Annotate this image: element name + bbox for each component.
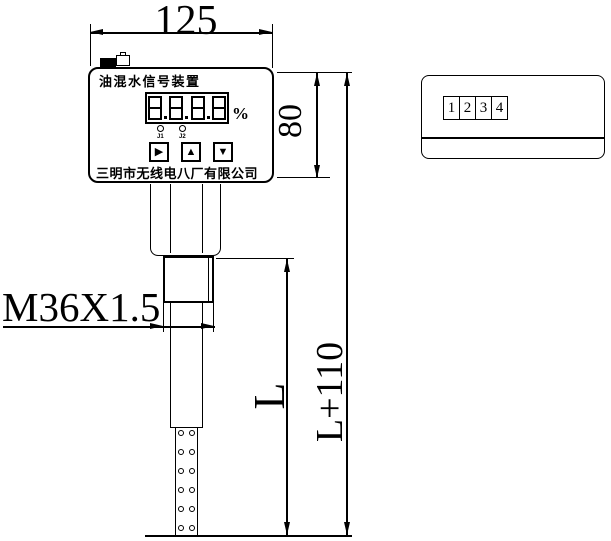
probe-hole [178,506,184,512]
probe-hole [189,468,195,474]
probe-hole [178,468,184,474]
dim-width-label: 125 [145,0,227,42]
extension-line [213,303,214,332]
probe-hole [189,525,195,531]
dim-height-label: 80 [274,93,308,149]
probe-wall [197,427,199,536]
down-arrow-button: ▼ [213,142,233,162]
arrowhead-icon [344,73,350,86]
dim-total-line [346,73,348,535]
extension-line [163,303,164,332]
led-j2 [179,125,186,132]
segment-digit [212,96,226,120]
down-triangle-icon: ▼ [218,147,229,158]
decimal-point [185,116,188,119]
probe-hole [178,430,184,436]
cable-gland-icon [116,55,130,66]
hex-nut [150,184,221,256]
right-arrow-button: ▶ [149,142,169,162]
threaded-section [163,256,214,303]
arrowhead-icon [314,73,320,86]
arrowhead-icon [284,522,290,535]
segment-digit [169,96,183,120]
cable-gland-icon [120,52,126,56]
probe-hole [178,487,184,493]
extension-line [272,24,273,68]
terminal-strip: 1 2 3 4 [443,96,507,120]
up-triangle-icon: ▲ [186,147,197,158]
hex-nut-facet-line [170,184,171,253]
segment-digit [148,96,162,120]
probe-hole [178,449,184,455]
led-j2-label: J2 [179,134,186,140]
extension-line [216,258,294,259]
terminal-3: 3 [475,96,492,120]
seven-segment-display [145,92,229,124]
probe-hole [189,487,195,493]
decimal-point [207,116,210,119]
terminal-box-divider [422,137,604,139]
thread-spec-label: M36X1.5 [2,287,160,328]
terminal-1: 1 [443,96,460,120]
probe-wall [175,427,177,536]
thread-dim-line [3,326,215,328]
company-name: 三明市无线电八厂有限公司 [96,163,258,182]
led-j1-label: J1 [157,134,164,140]
dim-height-line [316,73,318,178]
dim-width-line [90,32,272,34]
arrowhead-icon [284,259,290,272]
dim-total-label: L+110 [311,324,349,460]
terminal-2: 2 [459,96,476,120]
probe-hole [189,506,195,512]
probe-tube-wall [202,302,204,428]
segment-digit [191,96,205,120]
led-j1 [157,125,164,132]
extension-line [90,24,91,66]
hex-nut-facet-line [202,184,203,253]
probe-tube-wall [170,302,172,428]
percent-sign: % [232,104,249,124]
probe-tip-baseline [145,535,352,537]
cable-gland-icon [100,58,116,67]
right-triangle-icon: ▶ [155,147,163,158]
arrowhead-icon [344,522,350,535]
up-arrow-button: ▲ [181,142,201,162]
terminal-4: 4 [491,96,508,120]
technical-drawing: 125 油混水信号装置 % J1 J2 ▶ ▲ ▼ 三明市无线电八厂有限公司 [0,0,611,541]
extension-line [277,177,330,178]
arrowhead-icon [314,165,320,178]
arrowhead-icon [259,29,272,35]
probe-hole [189,449,195,455]
arrowhead-icon [150,323,163,329]
thread-line [208,258,209,301]
probe-hole [189,430,195,436]
decimal-point [164,116,167,119]
dim-L-label: L [249,371,291,421]
probe-hole [178,525,184,531]
device-title: 油混水信号装置 [99,71,201,90]
arrowhead-icon [90,29,103,35]
